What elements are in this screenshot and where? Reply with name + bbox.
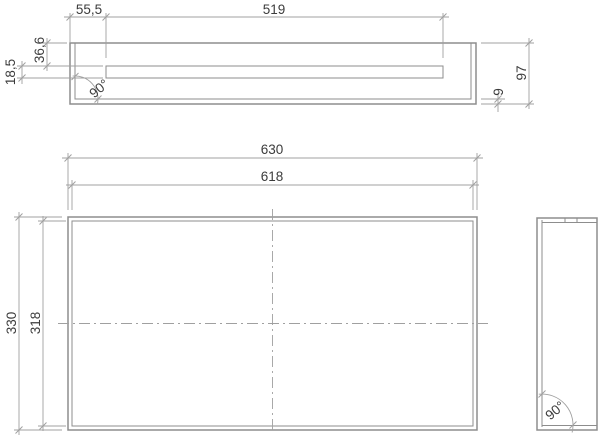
top-view-slot xyxy=(106,66,443,78)
dim-side-corner-angle: 90° xyxy=(542,398,567,423)
drawing-canvas: 55,5 519 36,6 18,5 90° 97 9 xyxy=(0,0,600,437)
side-view-dimensions: 90° xyxy=(539,391,577,433)
side-view xyxy=(537,218,597,430)
dim-inner-width: 618 xyxy=(261,169,284,184)
front-view-dimensions: 630 618 330 318 xyxy=(4,142,483,435)
top-view-inner-wall xyxy=(75,43,471,99)
top-view xyxy=(70,43,476,104)
dim-slot-offset-left: 55,5 xyxy=(76,2,102,17)
dim-inner-height: 318 xyxy=(28,312,43,335)
top-view-dimensions: 55,5 519 36,6 18,5 90° 97 9 xyxy=(3,2,534,112)
top-view-outline xyxy=(70,43,476,104)
dim-slot-length: 519 xyxy=(263,2,286,17)
front-view xyxy=(58,209,488,434)
dim-slot-width: 18,5 xyxy=(3,59,18,85)
side-view-outline xyxy=(537,218,597,430)
dim-outer-height: 330 xyxy=(4,312,19,335)
dim-depth: 97 xyxy=(514,65,529,80)
dim-top-corner-angle: 90° xyxy=(86,76,111,101)
dim-outer-width: 630 xyxy=(261,142,284,157)
technical-drawing: 55,5 519 36,6 18,5 90° 97 9 xyxy=(0,0,600,437)
dim-slot-offset-back: 36,6 xyxy=(32,37,47,63)
dim-front-thickness: 9 xyxy=(491,88,506,96)
